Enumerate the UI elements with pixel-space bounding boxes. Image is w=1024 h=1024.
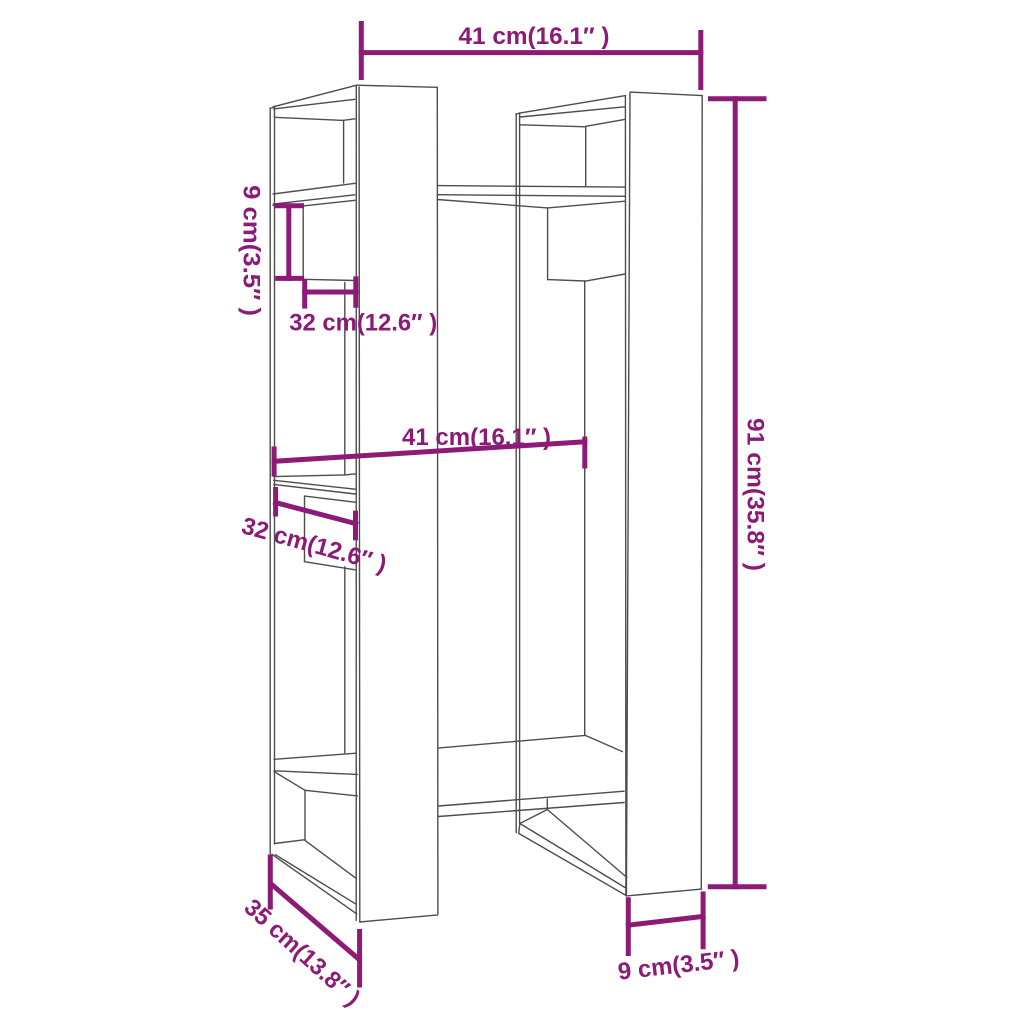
svg-text:41 cm(16.1″ ): 41 cm(16.1″ ) [459, 23, 610, 50]
svg-text:91 cm(35.8″ ): 91 cm(35.8″ ) [741, 418, 768, 571]
svg-text:32 cm(12.6″ ): 32 cm(12.6″ ) [289, 309, 437, 336]
svg-text:9 cm(3.5″ ): 9 cm(3.5″ ) [237, 185, 264, 316]
svg-text:41 cm(16.1″ ): 41 cm(16.1″ ) [402, 424, 551, 451]
